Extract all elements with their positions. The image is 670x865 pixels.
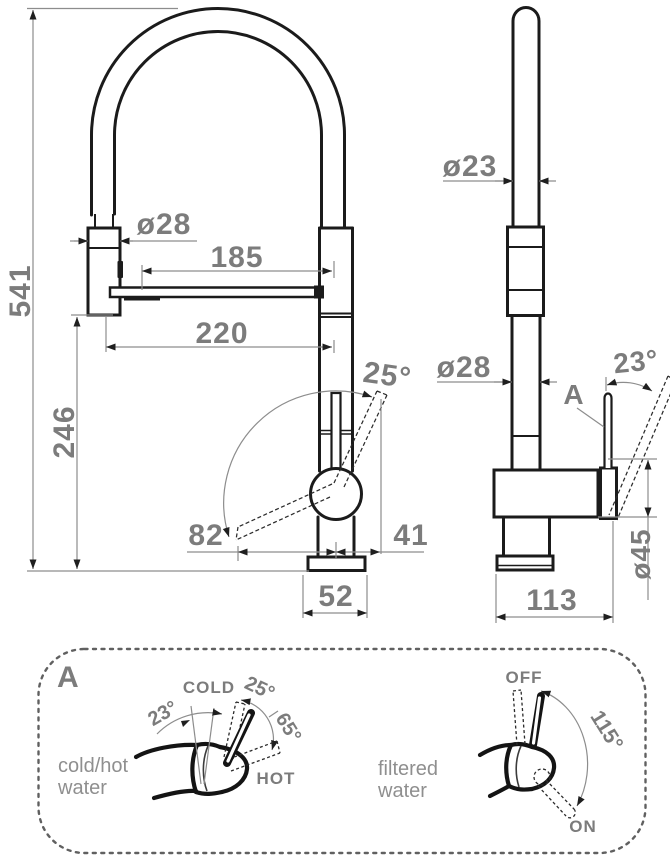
spray-head <box>88 228 120 315</box>
on-label: ON <box>569 817 597 836</box>
dim-depth: 113 <box>526 584 577 617</box>
cold-angle-label: 25° <box>241 672 278 705</box>
dim-body-diameter: ø45 <box>625 528 656 579</box>
side-view: ø23 ø28 23° A ø45 113 <box>437 8 670 624</box>
cold-label: COLD <box>183 678 235 697</box>
side-body <box>494 470 598 517</box>
faucet-dimension-drawing: 541 246 ø28 185 220 25° 82 <box>0 0 670 865</box>
side-handle-mount <box>601 468 617 519</box>
rest-angle-label: 23° <box>144 697 181 731</box>
off-label: OFF <box>506 668 543 687</box>
detail-ref-label: A <box>563 379 584 410</box>
range-angle-label: 115° <box>586 707 628 755</box>
cold-hot-sketch: COLD 25° 65° 23° HOT cold/hot water <box>57 672 305 799</box>
dim-reach-outer: 220 <box>195 317 248 350</box>
on-off-range-arc <box>541 691 588 806</box>
side-base-flange <box>497 556 553 570</box>
hose-tube <box>513 8 539 228</box>
dim-total-height: 541 <box>4 264 37 317</box>
spray-head-clip <box>118 261 124 278</box>
front-view: 541 246 ø28 185 220 25° 82 <box>4 9 429 619</box>
panel-dashed-border <box>39 649 646 853</box>
dim-hose-diameter: ø23 <box>443 150 498 183</box>
cold-hot-caption-line2: water <box>57 777 107 799</box>
dim-spout-height: 246 <box>48 405 81 458</box>
dim-spray-diameter: ø28 <box>137 208 192 241</box>
panel-ref-label: A <box>57 661 79 694</box>
dim-handle-back: 82 <box>188 519 223 552</box>
side-handle-lever <box>605 394 612 469</box>
side-collar <box>508 227 544 316</box>
dim-handle-angle: 25° <box>361 356 413 395</box>
dim-handle-front: 41 <box>393 519 428 552</box>
front-handle-swing-dashed <box>224 391 387 540</box>
filtered-caption-line1: filtered <box>378 758 438 780</box>
on-position-hub-dashed <box>534 769 550 785</box>
gooseneck-inner-arc <box>115 32 322 228</box>
filtered-sketch: OFF 115° ON filtered water <box>377 668 627 836</box>
off-position-dashed <box>513 690 525 745</box>
side-faucet-outline <box>494 8 617 571</box>
gooseneck-outer-arc <box>92 9 345 228</box>
detail-panel: A COLD 25° 65° 23° HOT cold/hot <box>39 649 646 853</box>
side-lever-swing-dashed <box>606 376 670 520</box>
handle-joint-ball <box>311 469 362 520</box>
dim-lever-angle: 23° <box>612 344 660 380</box>
dim-base-width: 52 <box>318 580 353 613</box>
dim-column-diameter: ø28 <box>437 351 492 384</box>
dim-reach-inner: 185 <box>210 241 263 274</box>
front-faucet-outline <box>88 9 365 571</box>
front-base-flange <box>308 557 365 571</box>
handle-lever-front <box>332 393 341 470</box>
hot-label: HOT <box>257 769 296 788</box>
front-dimensions: 541 246 ø28 185 220 25° 82 <box>4 9 429 619</box>
drawing-svg: 541 246 ø28 185 220 25° 82 <box>0 0 670 865</box>
filtered-caption-line2: water <box>377 780 427 802</box>
cold-hot-caption-line1: cold/hot <box>58 755 128 777</box>
lever-angle-arc <box>607 382 652 391</box>
